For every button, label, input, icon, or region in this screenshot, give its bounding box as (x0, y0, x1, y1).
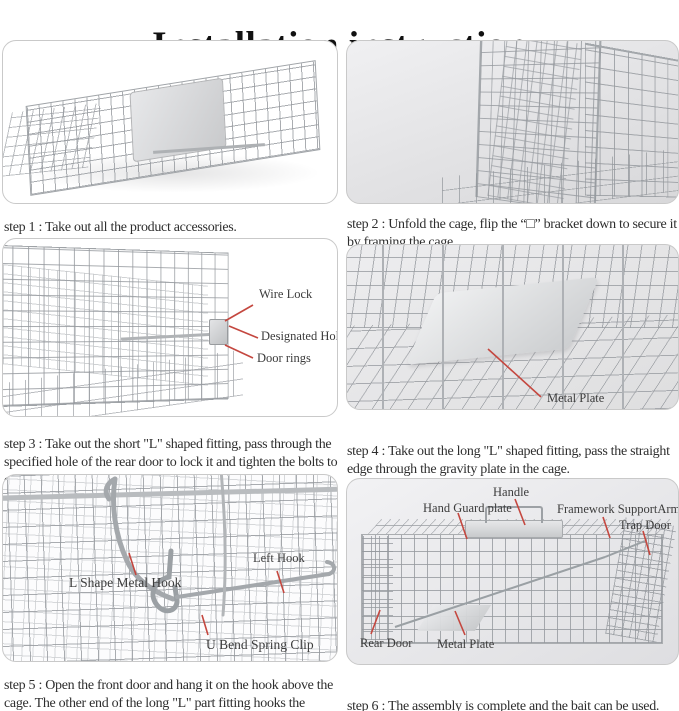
cage-wire-bar (442, 245, 444, 410)
label-metal-plate: Metal Plate (437, 637, 494, 652)
label-wire-lock: Wire Lock (259, 287, 312, 302)
wire-lock-bracket (209, 319, 228, 345)
step-5-photo-panel: L Shape Metal Hook Left Hook U Bend Spri… (2, 474, 338, 662)
step-6-caption: step 6 : The assembly is complete and th… (347, 698, 677, 711)
label-metal-plate: Metal Plate (547, 391, 604, 406)
label-u-bend-spring-clip: U Bend Spring Clip (206, 637, 314, 653)
label-handle: Handle (493, 485, 529, 500)
cage-wire-bar (562, 245, 564, 410)
rear-door-mesh (363, 536, 393, 640)
step-5-caption: step 5 : Open the front door and hang it… (4, 677, 338, 711)
step-4-photo-panel: Metal Plate (346, 244, 679, 410)
cage-wire-bar (382, 245, 384, 410)
label-hand-guard-plate: Hand Guard plate (423, 501, 512, 516)
step-3-photo-panel: Wire Lock Designated Hol Door rings (2, 238, 338, 417)
label-designated-hole: Designated Hol (261, 329, 338, 344)
label-left-hook: Left Hook (253, 551, 305, 566)
step-1-caption: step 1 : Take out all the product access… (4, 219, 336, 237)
annotation-line (229, 326, 258, 338)
step-6-photo-panel: Handle Hand Guard plate Framework Suppor… (346, 478, 679, 665)
cage-mesh-layer (2, 474, 338, 662)
label-framework-support-arm: Framework SupportArm (557, 502, 679, 517)
label-door-rings: Door rings (257, 351, 311, 366)
instruction-sheet: Installation instruction step 1 : Take o… (0, 0, 679, 711)
step-2-photo-panel (346, 40, 679, 204)
label-rear-door: Rear Door (360, 636, 412, 651)
step-1-photo-panel (2, 40, 338, 204)
label-l-shape-metal-hook: L Shape Metal Hook (69, 575, 181, 591)
cage-wire-bar (622, 245, 624, 410)
step-4-caption: step 4 : Take out the long "L" shaped fi… (347, 443, 677, 479)
label-trap-door: Trap Door (619, 518, 671, 533)
cage-wire-bar (502, 245, 504, 410)
folded-cage-flap-mesh (2, 103, 102, 177)
annotation-line (225, 305, 253, 321)
